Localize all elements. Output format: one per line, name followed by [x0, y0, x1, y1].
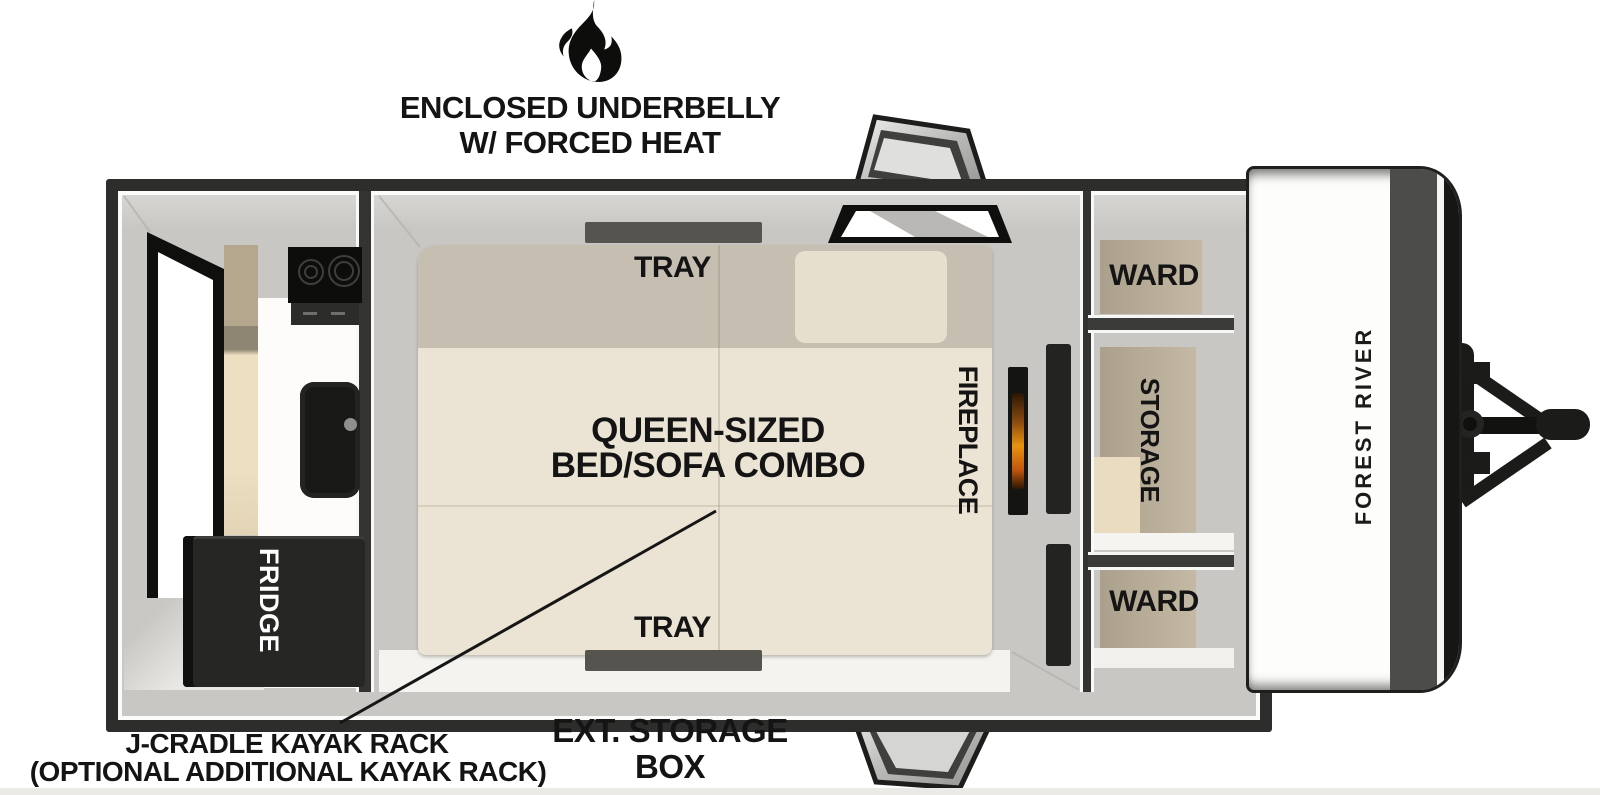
wall-panel-upper [1046, 344, 1071, 514]
faucet [344, 418, 357, 431]
bed-label-line1: QUEEN-SIZED [518, 413, 898, 448]
burner-small [298, 259, 324, 285]
wall-panel-lower [1046, 544, 1071, 666]
front-cap: FOREST RIVER [1246, 166, 1462, 693]
fridge-label: FRIDGE [252, 548, 284, 672]
cap-trim [1437, 169, 1444, 690]
feature-callout-line2: W/ FORCED HEAT [290, 127, 890, 160]
ward-bottom-floor [1094, 648, 1234, 668]
bed-seam [418, 505, 992, 507]
tray-label-top: TRAY [600, 252, 745, 284]
ext-storage-label-line2: BOX [520, 750, 820, 785]
burner-large [328, 255, 360, 287]
storage-bin [1094, 457, 1140, 533]
kitchen-sink [300, 382, 360, 498]
wall-bedroom-storage [1080, 191, 1094, 692]
kayak-rack-label-line2: (OPTIONAL ADDITIONAL KAYAK RACK) [0, 757, 578, 786]
storage-shelf [1094, 533, 1234, 550]
brand-logo-text: FOREST RIVER [1351, 271, 1379, 581]
kayak-rack-label-line1: J-CRADLE KAYAK RACK [37, 729, 537, 758]
storage-label: STORAGE [1135, 356, 1163, 524]
fireplace-label: FIREPLACE [952, 350, 982, 530]
shelf-divider-bottom [1088, 552, 1234, 570]
ext-storage-label-line1: EXT. STORAGE [520, 714, 820, 749]
tray-label-bottom: TRAY [600, 612, 745, 644]
bed-label-line2: BED/SOFA COMBO [518, 448, 898, 483]
feature-callout-line1: ENCLOSED UNDERBELLY [290, 92, 890, 125]
floorplan-diagram: ENCLOSED UNDERBELLY W/ FORCED HEAT [0, 0, 1600, 795]
tray-handle-bottom [585, 650, 762, 671]
bed-label: QUEEN-SIZED BED/SOFA COMBO [518, 413, 898, 483]
shelf-divider-top [1088, 315, 1234, 333]
fireplace [1008, 367, 1028, 515]
cap-edge [1444, 169, 1459, 690]
bed-pillow [795, 251, 947, 343]
flame-icon [556, 0, 624, 89]
fireplace-flame [1012, 393, 1024, 489]
cap-stripe [1390, 169, 1437, 690]
cooktop [288, 247, 362, 303]
hitch-coupler [1536, 409, 1590, 440]
cooktop-drawer [291, 303, 359, 325]
page-bottom-strip [0, 788, 1600, 795]
ward-top-label: WARD [1094, 260, 1214, 292]
tray-handle-top [585, 222, 762, 243]
kitchen-counter [224, 245, 258, 535]
ward-bottom-label: WARD [1094, 586, 1214, 618]
